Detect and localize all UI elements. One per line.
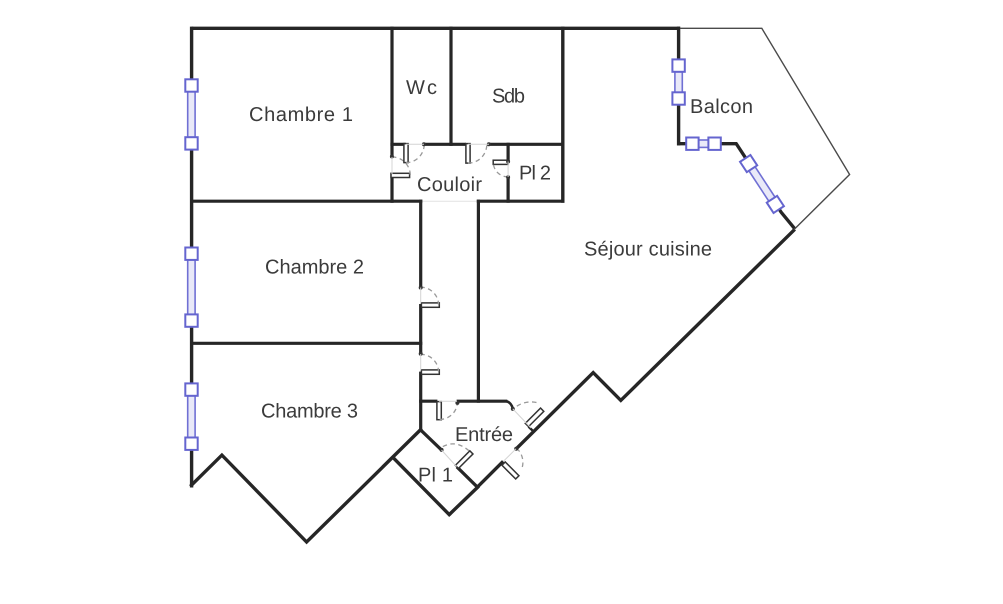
svg-text:Séjour cuisine: Séjour cuisine [584, 239, 712, 261]
svg-text:Balcon: Balcon [690, 96, 753, 118]
svg-text:Entrée: Entrée [455, 424, 513, 446]
svg-text:Couloir: Couloir [417, 174, 482, 196]
svg-text:Sdb: Sdb [492, 86, 525, 108]
svg-text:Wc: Wc [406, 77, 437, 99]
svg-text:Chambre 3: Chambre 3 [261, 401, 358, 423]
svg-text:Pl 2: Pl 2 [519, 163, 551, 185]
svg-text:Chambre 2: Chambre 2 [265, 257, 364, 279]
svg-text:Pl 1: Pl 1 [418, 465, 453, 487]
svg-text:Chambre 1: Chambre 1 [249, 104, 353, 126]
